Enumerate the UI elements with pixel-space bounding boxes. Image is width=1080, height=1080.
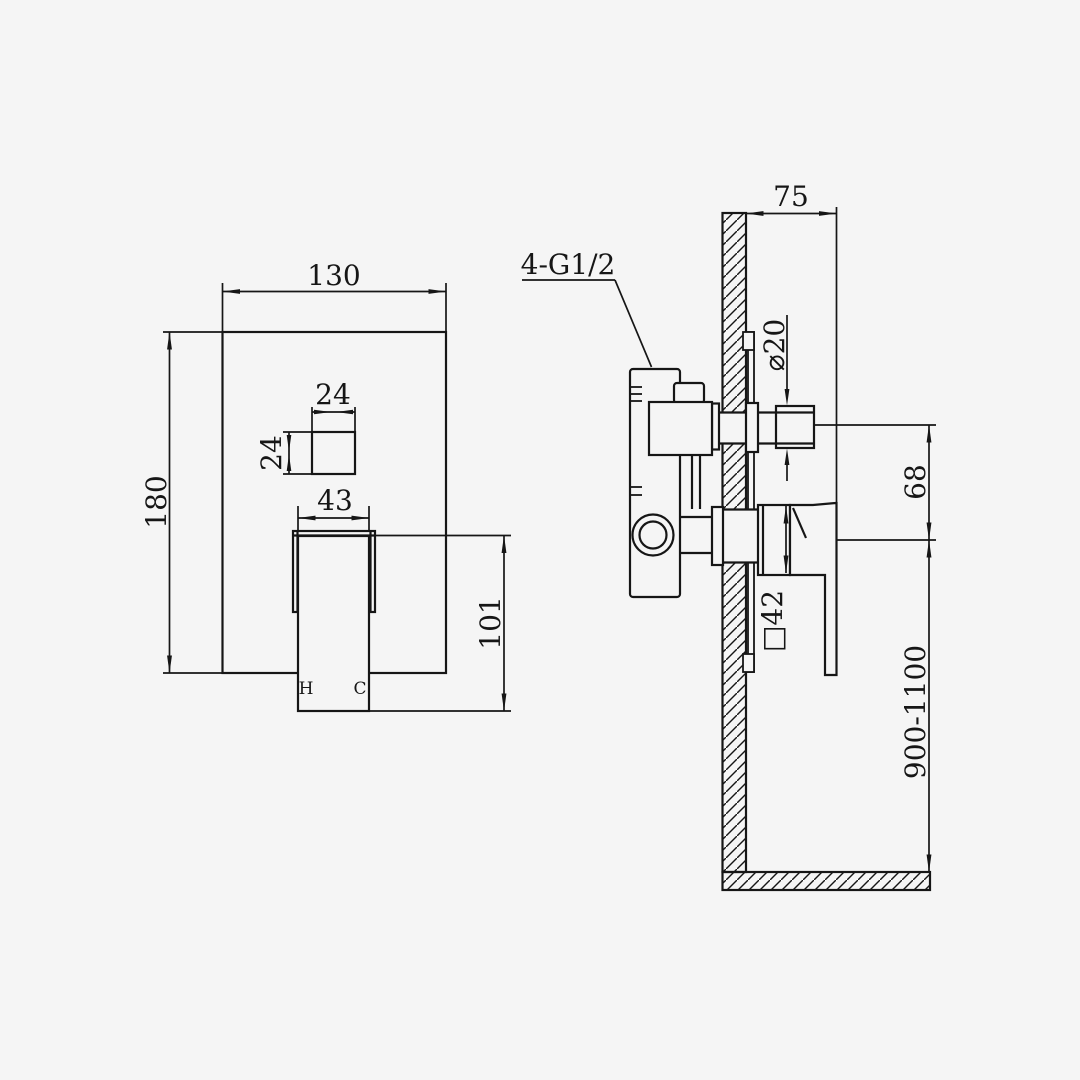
fixing-tab-bottom <box>743 654 754 672</box>
fixing-tab-top <box>743 332 754 350</box>
cartridge-housing <box>649 402 712 455</box>
dim-install-height: 900-1100 <box>899 645 932 779</box>
dim-plate-width: 130 <box>307 259 360 292</box>
floor-section <box>723 872 931 890</box>
label-cold: C <box>353 679 366 699</box>
label-hot: H <box>299 679 314 699</box>
diverter-button <box>312 432 355 474</box>
dim-button-width: 24 <box>315 378 351 411</box>
dim-plate-height: 180 <box>140 475 173 528</box>
dim-trim-size: □42 <box>756 590 789 652</box>
pipe-flange-right <box>746 403 758 452</box>
dim-spout-diameter: ⌀20 <box>758 319 791 372</box>
dim-button-height: 24 <box>255 435 288 471</box>
technical-drawing-canvas: 180 130 24 24 <box>0 0 1080 1080</box>
label-thread-size: 4-G1/2 <box>521 248 616 281</box>
dim-handle-width: 43 <box>317 484 353 517</box>
dim-wall-depth: 75 <box>773 180 809 213</box>
cartridge-cap <box>674 383 704 403</box>
lower-pipe-flange <box>712 507 723 565</box>
dim-handle-length: 101 <box>474 596 507 649</box>
dim-outlet-spacing: 68 <box>899 464 932 500</box>
handle-group: H C <box>293 531 375 711</box>
mixer-installation-drawing: 180 130 24 24 <box>0 0 1080 1080</box>
